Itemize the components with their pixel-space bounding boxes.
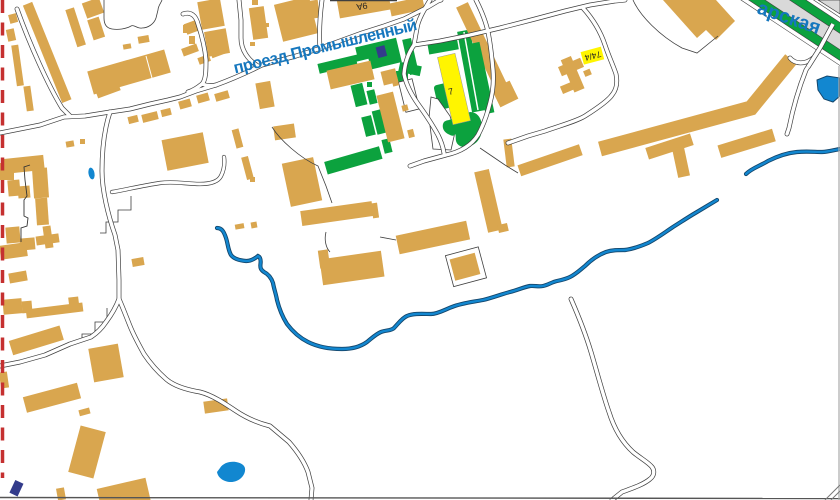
svg-text:9А: 9А <box>356 0 369 12</box>
